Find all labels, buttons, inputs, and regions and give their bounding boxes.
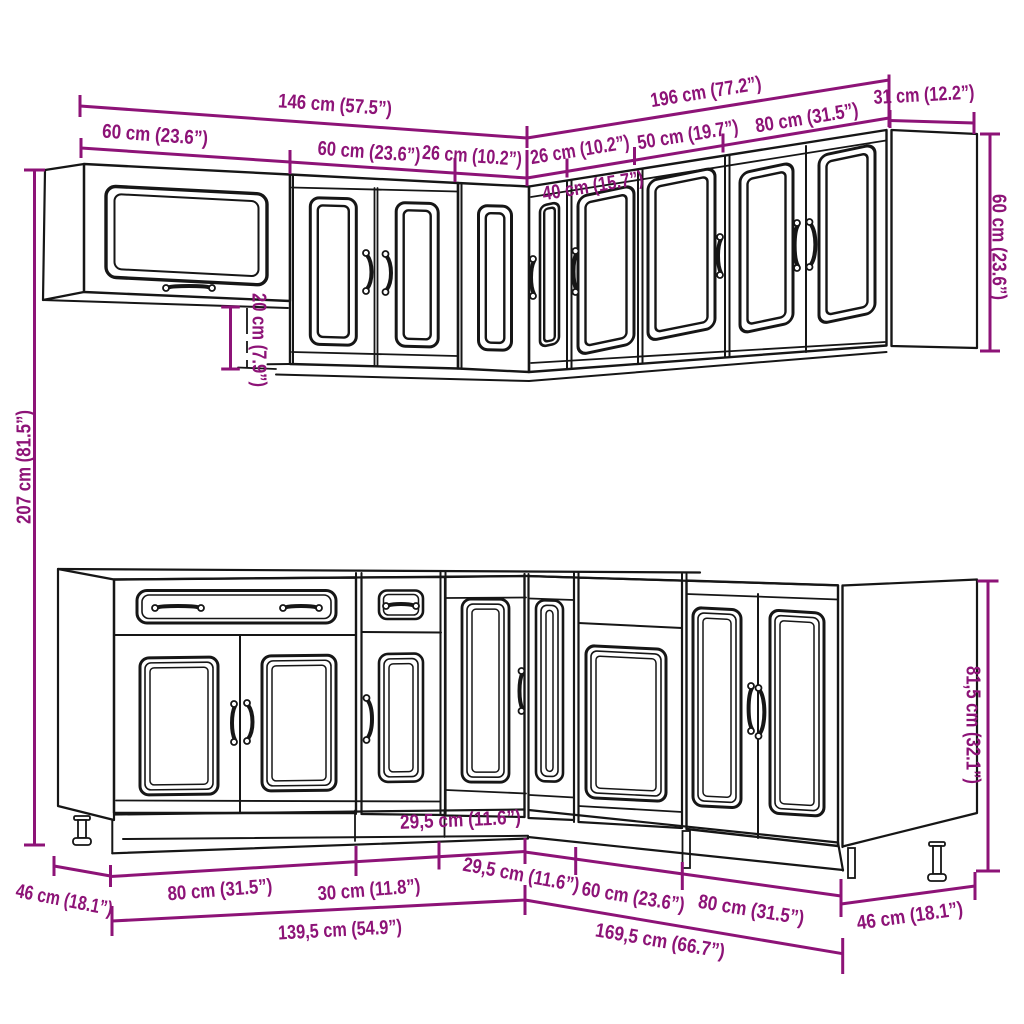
- svg-text:81,5 cm (32.1”): 81,5 cm (32.1”): [962, 666, 984, 784]
- svg-text:207 cm (81.5”): 207 cm (81.5”): [13, 410, 35, 524]
- svg-text:60 cm (23.6”): 60 cm (23.6”): [988, 194, 1010, 300]
- svg-text:20 cm (7.9”): 20 cm (7.9”): [248, 293, 270, 387]
